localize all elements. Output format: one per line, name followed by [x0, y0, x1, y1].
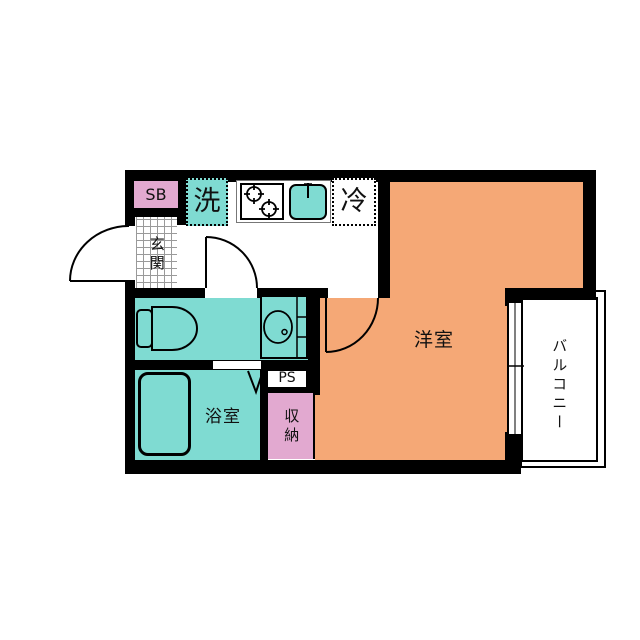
kitchen-sink — [289, 184, 327, 220]
wall-shoebox-right-stub — [177, 170, 186, 225]
shoe-box-label: SB — [134, 181, 178, 208]
wall-right — [583, 170, 596, 300]
pipe-space-label: PS — [266, 369, 308, 389]
bathroom-door-opening — [212, 360, 262, 370]
toilet-door-opening — [205, 288, 257, 298]
balcony-window — [507, 303, 523, 434]
refrigerator-text: 冷 — [341, 187, 368, 217]
western-room-text: 洋室 — [414, 330, 454, 351]
floor-plan-canvas: { "labels": { "shoe_box": "SB", "washer"… — [0, 0, 640, 640]
bathtub — [138, 372, 191, 456]
storage-label: 収納 — [281, 400, 301, 454]
bathroom-label: 浴室 — [185, 406, 261, 428]
pipe-space-text: PS — [278, 371, 295, 386]
western-room-lower-floor — [315, 288, 513, 460]
toilet-room-floor — [133, 296, 310, 362]
balcony-label: バルコニー — [549, 312, 569, 458]
entrance-label: 玄関 — [146, 222, 167, 288]
shoe-box-text: SB — [145, 186, 166, 204]
wall-kitchen-room-divider — [378, 182, 390, 298]
stove-box — [240, 183, 284, 220]
refrigerator-label: 冷 — [332, 178, 376, 226]
western-room-label: 洋室 — [394, 328, 474, 352]
western-room-door-opening — [328, 288, 378, 298]
wall-under-shoebox — [133, 207, 182, 217]
wall-window-bottom-stub — [505, 432, 523, 462]
bathroom-text: 浴室 — [205, 408, 241, 427]
washer-label: 洗 — [186, 178, 228, 226]
western-room-upper-floor — [390, 182, 583, 290]
wall-bottom — [125, 460, 521, 474]
wall-left-lower — [125, 280, 135, 474]
entrance-door-swing-icon — [70, 226, 129, 281]
washer-text: 洗 — [194, 187, 221, 217]
wall-right-of-toilet — [308, 288, 320, 395]
